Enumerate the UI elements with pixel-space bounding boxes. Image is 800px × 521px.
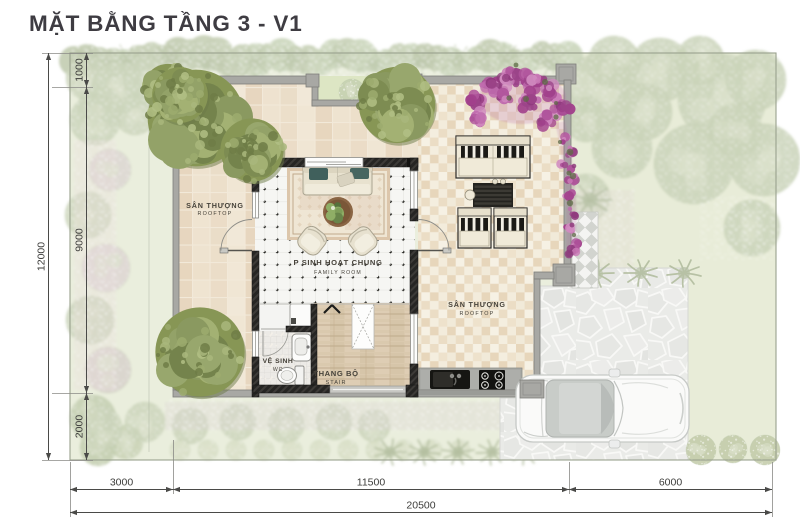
svg-text:6000: 6000 [659,477,683,489]
svg-text:WC: WC [273,367,283,373]
svg-text:ROOFTOP: ROOFTOP [460,311,495,317]
svg-text:ROOFTOP: ROOFTOP [198,211,233,217]
svg-text:MẶT BẰNG TẦNG 3 - V1: MẶT BẰNG TẦNG 3 - V1 [29,11,303,36]
svg-text:2000: 2000 [74,415,86,439]
svg-text:STAIR: STAIR [325,380,346,386]
svg-text:12000: 12000 [36,242,48,271]
svg-text:1000: 1000 [74,58,86,82]
svg-text:VỆ SINH: VỆ SINH [263,356,294,365]
svg-text:20500: 20500 [406,500,435,512]
svg-text:SÂN THƯỢNG: SÂN THƯỢNG [448,300,506,309]
svg-text:9000: 9000 [74,228,86,252]
svg-text:P SINH HOẠT CHUNG: P SINH HOẠT CHUNG [294,258,383,267]
svg-text:3000: 3000 [110,477,134,489]
svg-text:11500: 11500 [357,477,386,489]
svg-text:THANG BỘ: THANG BỘ [313,369,358,378]
svg-text:SÂN THƯỢNG: SÂN THƯỢNG [186,201,244,210]
svg-text:FAMILY ROOM: FAMILY ROOM [314,270,362,276]
